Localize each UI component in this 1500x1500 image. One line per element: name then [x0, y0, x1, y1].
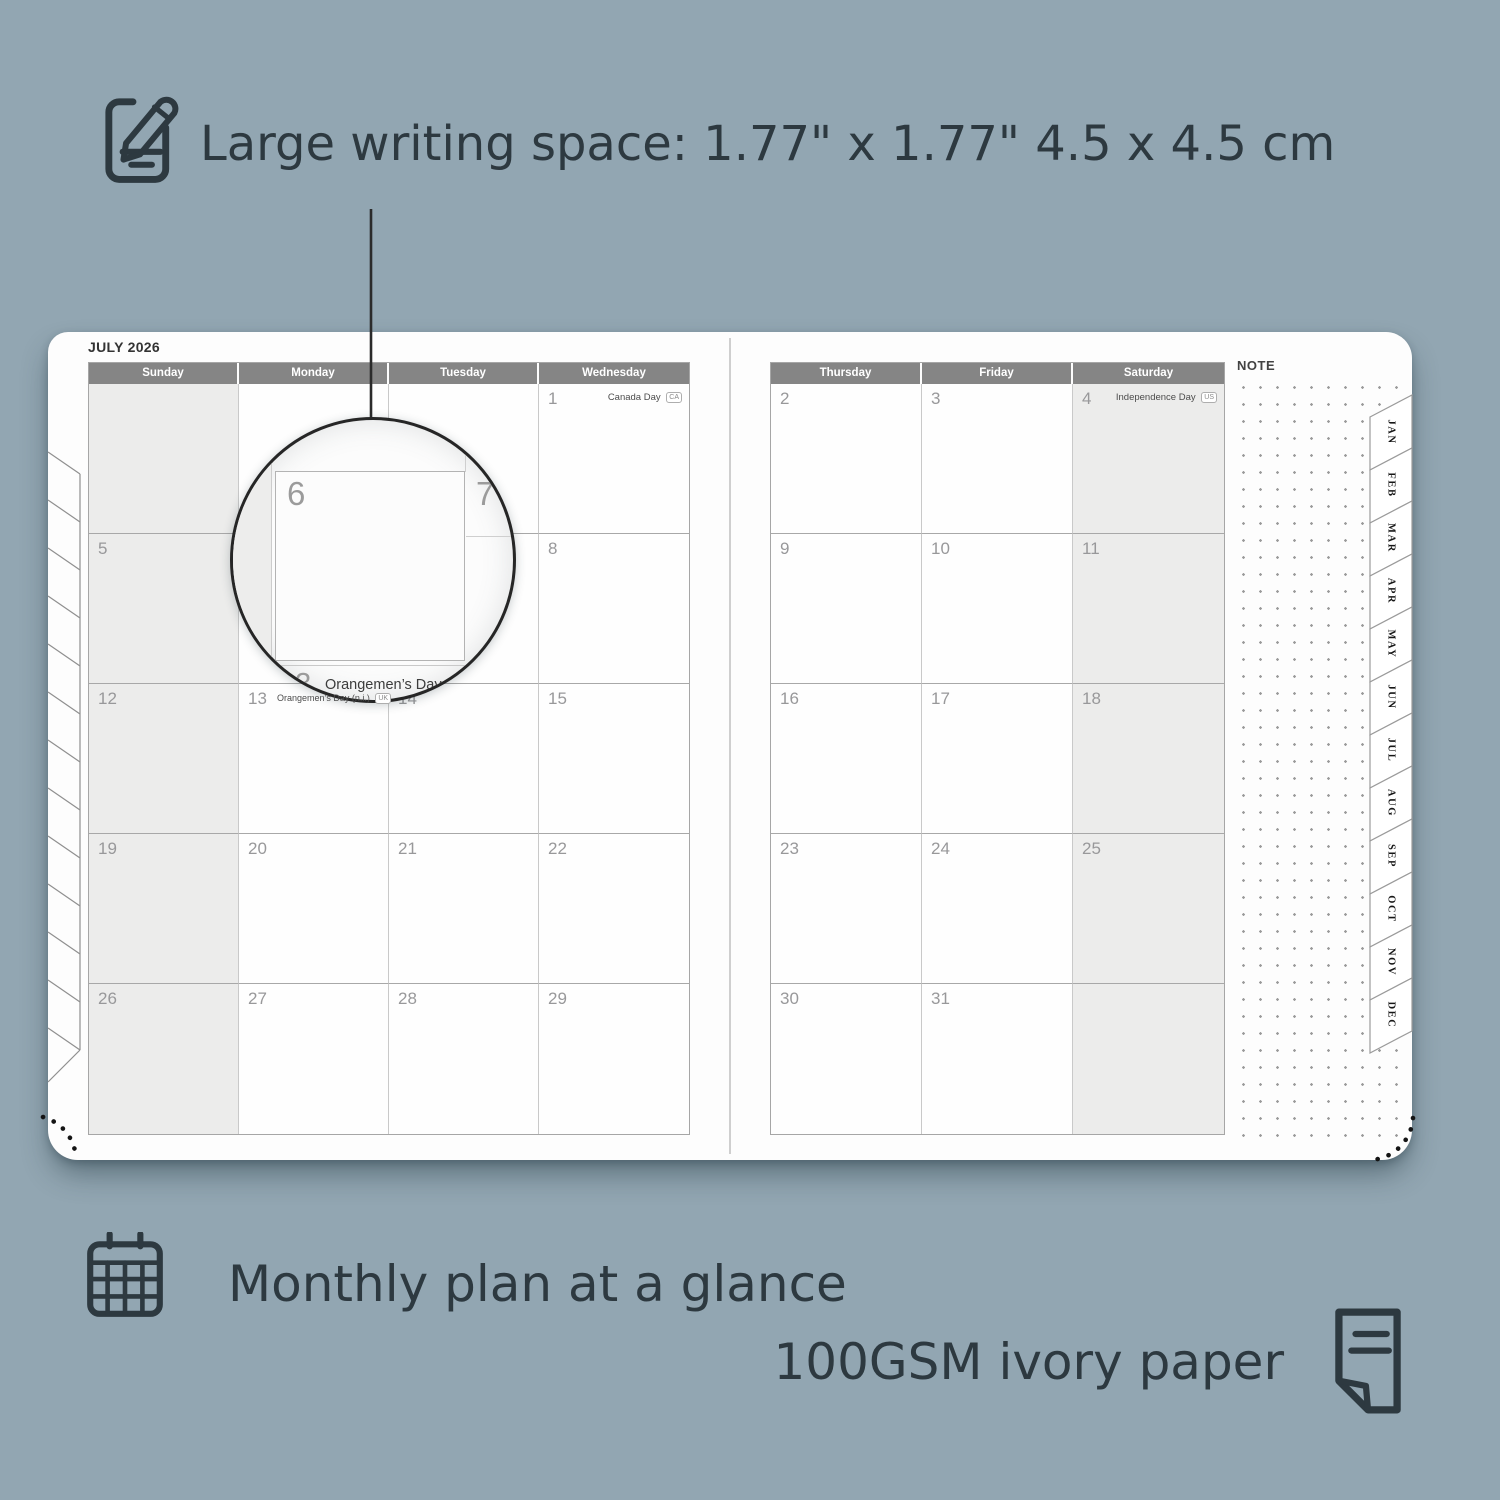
calendar-week-row: 26272829 [89, 984, 689, 1134]
magnifier-circle: 6 7 13 Orangemen’s Day (n.i.)UK [230, 417, 516, 703]
holiday-text: Orangemen’s Day (n.i.) [325, 677, 475, 693]
holiday-country-badge: CA [666, 392, 682, 403]
calendar-cell: 22 [539, 834, 689, 984]
calendar-cell: 24 [922, 834, 1073, 984]
binding-gutter-line [729, 338, 731, 1154]
day-number: 10 [931, 539, 950, 559]
day-number: 29 [548, 989, 567, 1009]
note-dot-grid [1232, 374, 1404, 1148]
calendar-cell: 11 [1073, 534, 1224, 684]
page-title: JULY 2026 [88, 339, 160, 355]
day-number: 5 [98, 539, 107, 559]
calendar-cell: 18 [1073, 684, 1224, 834]
day-header: Thursday [771, 363, 922, 384]
magnified-day-number: 6 [287, 475, 305, 513]
day-number: 24 [931, 839, 950, 859]
day-header: Wednesday [539, 363, 689, 384]
day-number: 26 [98, 989, 117, 1009]
calendar-cell: 15 [539, 684, 689, 834]
calendar-cell: 12 [89, 684, 239, 834]
magnified-grid-line [269, 665, 466, 666]
day-number: 18 [1082, 689, 1101, 709]
day-number: 12 [98, 689, 117, 709]
calendar-cell: 5 [89, 534, 239, 684]
day-number: 17 [931, 689, 950, 709]
day-number: 16 [780, 689, 799, 709]
calendar-cell [1073, 984, 1224, 1134]
calendar-cell: 29 [539, 984, 689, 1134]
day-header: Tuesday [389, 363, 539, 384]
magnified-grid-line [466, 536, 516, 537]
paper-sheet-icon [1320, 1308, 1416, 1414]
magnified-holiday-label: Orangemen’s Day (n.i.)UK [325, 677, 500, 693]
calendar-cell: 13Orangemen’s Day (n.i.) UK [239, 684, 389, 834]
calendar-cell: 20 [239, 834, 389, 984]
calendar-cell: 16 [771, 684, 922, 834]
calendar-cell: 4Independence Day US [1073, 384, 1224, 534]
day-number: 31 [931, 989, 950, 1009]
magnified-grid-line [465, 420, 466, 472]
callout-monthly-plan: Monthly plan at a glance [228, 1252, 847, 1316]
day-number: 2 [780, 389, 789, 409]
day-number: 27 [248, 989, 267, 1009]
calendar-cell: 31 [922, 984, 1073, 1134]
calendar-cell: 9 [771, 534, 922, 684]
calendar-cell: 17 [922, 684, 1073, 834]
holiday-label: Orangemen’s Day (n.i.) UK [277, 693, 391, 704]
magnified-day-number: 7 [476, 475, 494, 513]
day-number: 15 [548, 689, 567, 709]
calendar-cell: 27 [239, 984, 389, 1134]
right-month-grid: ThursdayFridaySaturday234Independence Da… [770, 362, 1225, 1135]
calendar-cell: 26 [89, 984, 239, 1134]
day-number: 9 [780, 539, 789, 559]
calendar-cell: 3 [922, 384, 1073, 534]
calendar-cell: 2 [771, 384, 922, 534]
calendar-cell: 14 [389, 684, 539, 834]
day-number: 21 [398, 839, 417, 859]
calendar-cell [89, 384, 239, 534]
day-number: 8 [548, 539, 557, 559]
calendar-week-row: 232425 [771, 834, 1224, 984]
day-number: 30 [780, 989, 799, 1009]
product-infographic: { "colors": { "background": "#92a6b2", "… [0, 0, 1500, 1500]
holiday-country-badge: US [1201, 392, 1217, 403]
callout-paper: 100GSM ivory paper [774, 1330, 1285, 1394]
calendar-grid-icon [84, 1232, 166, 1320]
day-number: 3 [931, 389, 940, 409]
calendar-week-row: 1213Orangemen’s Day (n.i.) UK1415 [89, 684, 689, 834]
day-number: 4 [1082, 389, 1091, 409]
holiday-label: Canada Day CA [608, 392, 682, 403]
calendar-cell: 28 [389, 984, 539, 1134]
day-header: Friday [922, 363, 1073, 384]
holiday-country-badge: UK [375, 693, 391, 704]
day-number: 1 [548, 389, 557, 409]
calendar-cell: 8 [539, 534, 689, 684]
day-header-row: ThursdayFridaySaturday [771, 363, 1224, 384]
day-number: 23 [780, 839, 799, 859]
pencil-note-icon [83, 76, 195, 188]
day-header: Sunday [89, 363, 239, 384]
note-label: NOTE [1237, 358, 1275, 373]
day-number: 20 [248, 839, 267, 859]
calendar-cell: 30 [771, 984, 922, 1134]
day-header: Monday [239, 363, 389, 384]
day-header: Saturday [1073, 363, 1224, 384]
day-number: 19 [98, 839, 117, 859]
calendar-week-row: 91011 [771, 534, 1224, 684]
holiday-country-badge: UK [480, 678, 501, 692]
day-number: 22 [548, 839, 567, 859]
day-number: 25 [1082, 839, 1101, 859]
calendar-week-row: 3031 [771, 984, 1224, 1134]
day-number: 28 [398, 989, 417, 1009]
calendar-cell: 23 [771, 834, 922, 984]
holiday-label: Independence Day US [1116, 392, 1217, 403]
day-number: 11 [1082, 539, 1100, 559]
magnified-column-shading [233, 420, 272, 700]
calendar-cell: 19 [89, 834, 239, 984]
calendar-cell: 25 [1073, 834, 1224, 984]
calendar-cell: 1Canada Day CA [539, 384, 689, 534]
day-header-row: SundayMondayTuesdayWednesday [89, 363, 689, 384]
calendar-cell: 21 [389, 834, 539, 984]
calendar-week-row: 234Independence Day US [771, 384, 1224, 534]
calendar-week-row: 161718 [771, 684, 1224, 834]
callout-writing-space: Large writing space: 1.77" x 1.77" 4.5 x… [200, 112, 1335, 176]
calendar-week-row: 19202122 [89, 834, 689, 984]
calendar-cell: 10 [922, 534, 1073, 684]
